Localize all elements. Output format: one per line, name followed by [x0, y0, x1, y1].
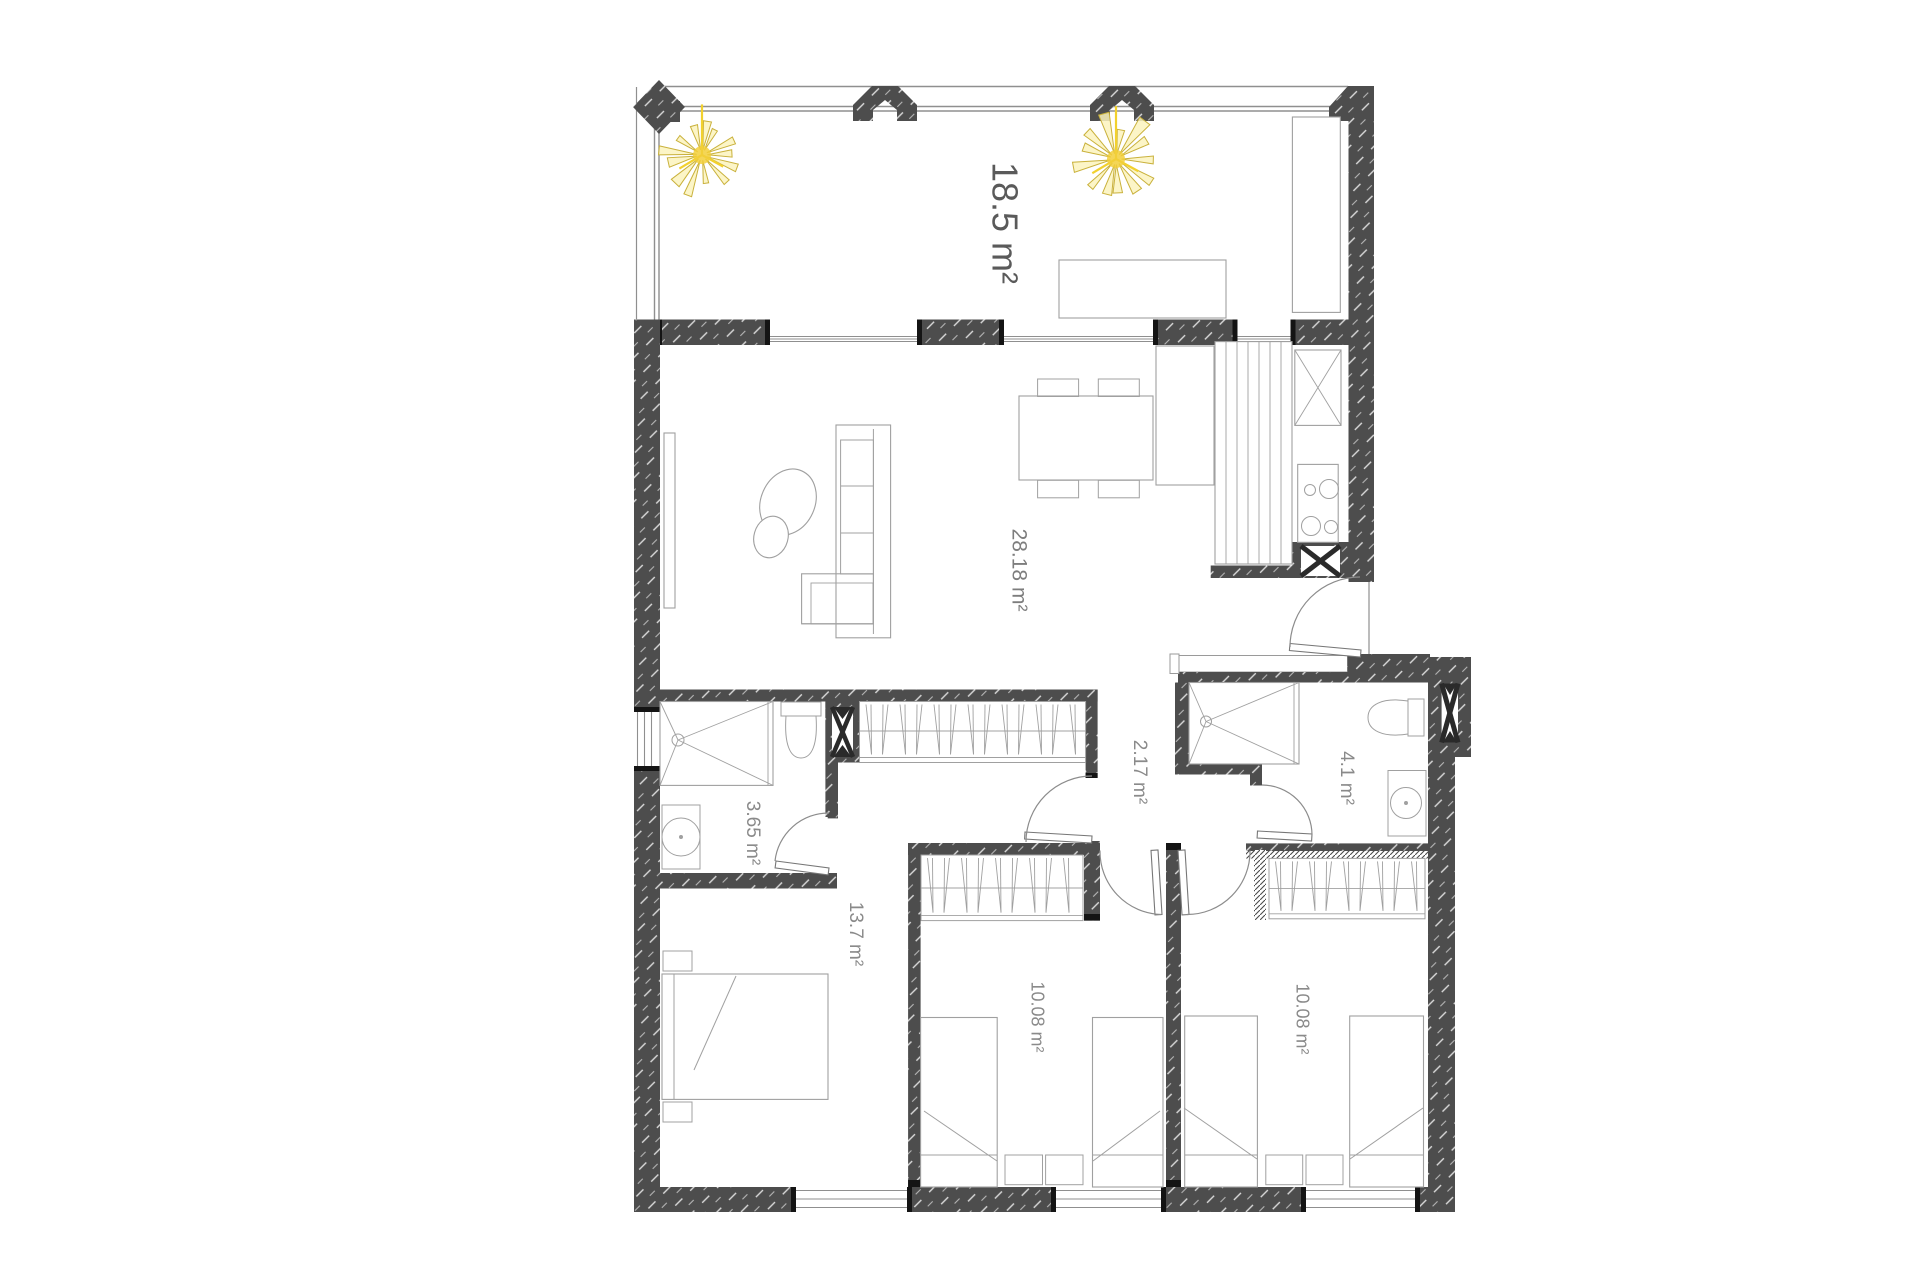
svg-text:2.17 m²: 2.17 m² — [1129, 740, 1150, 804]
svg-text:3.65 m²: 3.65 m² — [742, 801, 763, 865]
svg-text:10.08 m²: 10.08 m² — [1292, 983, 1312, 1054]
svg-text:13.7 m²: 13.7 m² — [845, 902, 866, 966]
svg-text:28.18 m²: 28.18 m² — [1007, 529, 1030, 612]
svg-text:10.08 m²: 10.08 m² — [1027, 981, 1047, 1052]
svg-text:4.1 m²: 4.1 m² — [1336, 751, 1357, 805]
svg-text:18.5 m²: 18.5 m² — [984, 162, 1025, 284]
